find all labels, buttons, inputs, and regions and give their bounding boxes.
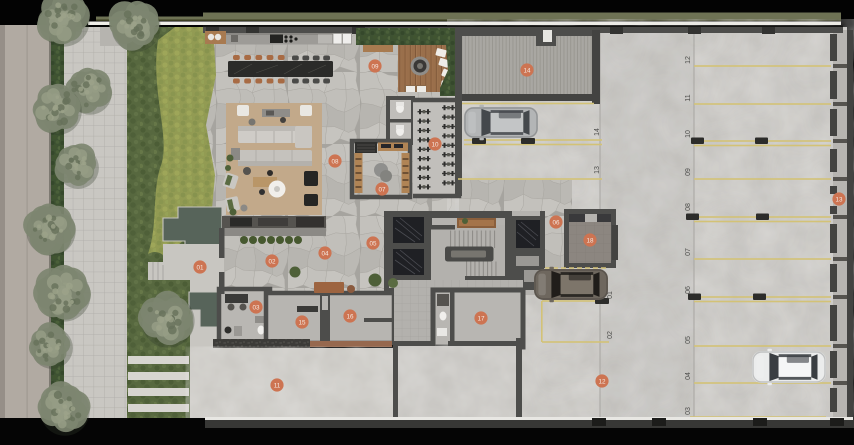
- svg-text:05: 05: [685, 336, 692, 344]
- svg-text:13: 13: [835, 196, 843, 203]
- svg-text:08: 08: [685, 203, 692, 211]
- svg-text:07: 07: [378, 186, 386, 193]
- svg-text:14: 14: [523, 67, 531, 74]
- svg-text:06: 06: [552, 219, 560, 226]
- svg-text:12: 12: [685, 56, 692, 64]
- svg-text:13: 13: [594, 166, 601, 174]
- svg-text:06: 06: [685, 286, 692, 294]
- svg-text:05: 05: [369, 240, 377, 247]
- svg-text:03: 03: [252, 304, 260, 311]
- svg-text:12: 12: [598, 378, 606, 385]
- svg-text:14: 14: [594, 128, 601, 136]
- svg-text:18: 18: [586, 237, 594, 244]
- svg-text:17: 17: [477, 315, 485, 322]
- svg-text:04: 04: [321, 250, 329, 257]
- svg-text:04: 04: [685, 372, 692, 380]
- svg-text:02: 02: [607, 331, 614, 339]
- svg-text:01: 01: [196, 264, 204, 271]
- svg-text:07: 07: [685, 248, 692, 256]
- svg-text:02: 02: [268, 258, 276, 265]
- svg-text:10: 10: [685, 130, 692, 138]
- svg-text:08: 08: [331, 158, 339, 165]
- svg-text:16: 16: [346, 313, 354, 320]
- svg-text:09: 09: [685, 168, 692, 176]
- svg-text:11: 11: [685, 94, 692, 101]
- svg-text:09: 09: [371, 63, 379, 70]
- svg-text:03: 03: [685, 407, 692, 415]
- svg-text:01: 01: [607, 291, 614, 299]
- svg-text:11: 11: [274, 382, 281, 389]
- svg-text:15: 15: [298, 319, 306, 326]
- svg-text:10: 10: [431, 141, 439, 148]
